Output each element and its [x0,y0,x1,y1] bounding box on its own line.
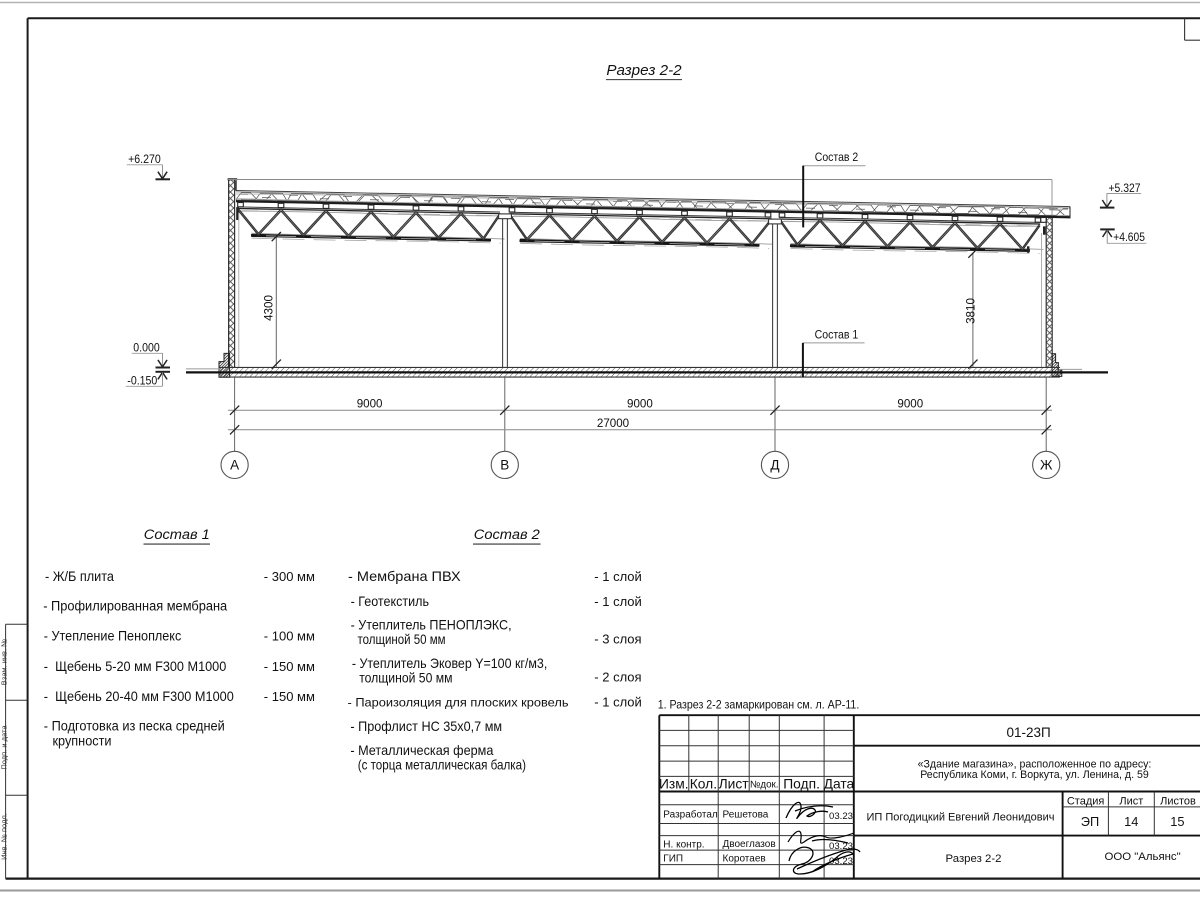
svg-text:03.23: 03.23 [829,841,853,852]
svg-text:+5.327: +5.327 [1109,181,1141,195]
svg-text:+4.605: +4.605 [1113,230,1145,244]
svg-text:1. Разрез 2-2 замаркирован см.: 1. Разрез 2-2 замаркирован см. л. АР-11. [658,697,860,711]
svg-text:9000: 9000 [897,397,923,410]
svg-text:- Щебень 20-40 мм F300 М1000: - Щебень 20-40 мм F300 М1000 [44,689,234,704]
svg-text:- 1 слой: - 1 слой [594,694,642,709]
svg-text:Лист: Лист [719,777,750,792]
svg-text:Двоеглазов: Двоеглазов [723,839,776,850]
svg-text:ЭП: ЭП [1081,814,1099,829]
svg-text:Изм.: Изм. [659,777,689,792]
svg-text:Лист: Лист [1119,796,1143,808]
svg-text:- 1 слой: - 1 слой [594,594,642,609]
svg-text:- 100 мм: - 100 мм [264,629,315,644]
svg-text:толщиной 50 мм: толщиной 50 мм [359,669,452,685]
svg-text:- Щебень 5-20 мм F300 М1000: - Щебень 5-20 мм F300 М1000 [44,659,227,674]
svg-text:Состав 1: Состав 1 [144,527,210,543]
svg-text:Стадия: Стадия [1067,796,1105,808]
svg-text:крупности: крупности [53,734,112,749]
svg-text:- 2 слоя: - 2 слоя [594,670,641,685]
svg-text:- 150 мм: - 150 мм [264,659,315,674]
svg-text:15: 15 [1170,814,1184,829]
svg-text:01-23П: 01-23П [1006,725,1050,740]
svg-text:- Утепление Пеноплекс: - Утепление Пеноплекс [44,629,182,644]
svg-text:Состав 2: Состав 2 [474,527,540,543]
svg-text:- 3 слоя: - 3 слоя [594,631,641,646]
svg-text:Разрез 2-2: Разрез 2-2 [606,62,682,79]
svg-text:Ж: Ж [1040,458,1053,473]
svg-text:- Утеплитель Эковер Y=100 кг/м: - Утеплитель Эковер Y=100 кг/м3, [352,655,547,671]
svg-text:№док.: №док. [750,780,779,791]
svg-text:ГИП: ГИП [663,854,683,865]
svg-text:- Профлист НС 35х0,7 мм: - Профлист НС 35х0,7 мм [350,718,502,734]
svg-text:Д: Д [770,458,779,473]
svg-text:Листов: Листов [1160,796,1196,808]
svg-text:Состав 2: Состав 2 [815,150,859,164]
svg-text:- 1 слой: - 1 слой [594,569,642,584]
svg-text:(с торца металлическая балка): (с торца металлическая балка) [358,756,526,772]
svg-text:Дата: Дата [824,777,855,792]
svg-text:+6.270: +6.270 [128,152,161,166]
svg-text:- Пароизоляция для плоских кро: - Пароизоляция для плоских кровель [348,695,569,709]
svg-text:Коротаев: Коротаев [723,853,766,864]
svg-text:-0.150: -0.150 [127,373,157,387]
svg-text:9000: 9000 [357,397,383,410]
svg-text:ООО "Альянс": ООО "Альянс" [1105,851,1181,863]
svg-text:В: В [500,458,509,473]
svg-text:- Профилированная мембрана: - Профилированная мембрана [43,598,227,613]
svg-text:Взам. инв. №: Взам. инв. № [0,639,9,685]
svg-text:4300: 4300 [263,295,276,321]
svg-text:0.000: 0.000 [133,341,160,355]
svg-text:3810: 3810 [965,298,978,324]
svg-text:Подп.: Подп. [783,777,820,792]
svg-text:Кол.: Кол. [690,777,717,792]
svg-text:Разрез 2-2: Разрез 2-2 [946,853,1002,865]
svg-text:толщиной 50 мм: толщиной 50 мм [358,631,446,647]
svg-text:Разработал: Разработал [663,809,718,821]
svg-text:А: А [230,458,239,473]
svg-text:03.23: 03.23 [829,811,853,822]
svg-text:- Мембрана ПВХ: - Мембрана ПВХ [348,568,461,584]
svg-text:9000: 9000 [627,397,653,410]
svg-text:Республика Коми, г. Воркута, у: Республика Коми, г. Воркута, ул. Ленина,… [920,769,1149,781]
svg-text:Подп. и дата: Подп. и дата [0,725,9,770]
svg-text:- Подготовка из песка средней: - Подготовка из песка средней [44,719,225,734]
svg-text:- 300 мм: - 300 мм [264,569,315,584]
svg-text:Н. контр.: Н. контр. [663,839,704,850]
svg-text:Состав 1: Состав 1 [815,328,859,342]
svg-text:- 150 мм: - 150 мм [264,689,315,704]
svg-text:Решетова: Решетова [723,809,769,820]
svg-text:14: 14 [1124,814,1138,829]
svg-text:ИП Погодицкий Евгений Леонидов: ИП Погодицкий Евгений Леонидович [867,812,1055,824]
svg-text:27000: 27000 [597,417,629,430]
svg-text:- Ж/Б плита: - Ж/Б плита [45,569,114,584]
svg-text:Инв. № подл.: Инв. № подл. [0,813,9,860]
svg-text:- Геотекстиль: - Геотекстиль [351,593,429,609]
